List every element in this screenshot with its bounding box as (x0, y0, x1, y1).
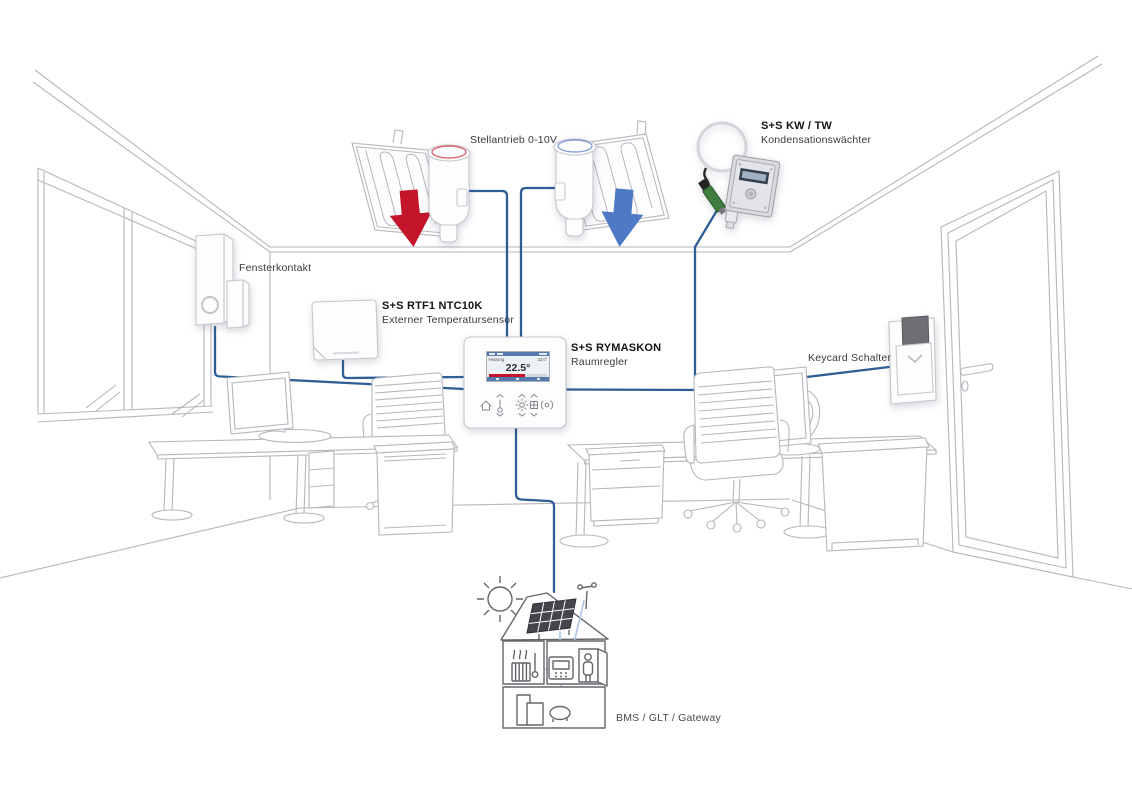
label-room-controller-subtitle: Raumregler (571, 356, 628, 368)
door (941, 171, 1073, 577)
room-outline (0, 56, 1132, 589)
temp-sensor-device (312, 300, 378, 360)
thermostat-icon (549, 657, 573, 679)
chair-right (684, 367, 789, 532)
window-contact-device (196, 234, 249, 328)
display-mode-row: Heizung 22.0° (487, 356, 549, 363)
controller-display: Heizung 22.0° 22.5° (486, 351, 550, 382)
label-condensation-title: S+S KW / TW (761, 120, 832, 132)
label-window-contact: Fensterkontakt (239, 262, 311, 274)
cabinet-left (374, 442, 455, 535)
house-bms-icon (477, 576, 608, 728)
display-setpoint: 22.0° (538, 356, 548, 363)
display-mode: Heizung (489, 356, 505, 363)
controller-brand: S+S REGELTECHNIK (468, 341, 562, 347)
condensation-probe (697, 178, 728, 216)
display-temperature: 22.5° (487, 363, 549, 374)
hvac-room-diagram: Stellantrieb 0-10V S+S KW / TW Kondensat… (0, 0, 1132, 800)
label-keycard: Keycard Schalter (808, 352, 891, 364)
label-bms: BMS / GLT / Gateway (616, 712, 721, 724)
appliance-icon (550, 707, 570, 723)
keycard-switch-device (889, 316, 936, 404)
display-menu-bar (487, 377, 549, 381)
wire-bms (516, 427, 554, 592)
cabinet-right-large (818, 438, 929, 551)
door-handle-icon (960, 364, 993, 391)
label-temp-sensor-title: S+S RTF1 NTC10K (382, 300, 483, 312)
label-actuator: Stellantrieb 0-10V (470, 134, 557, 146)
label-temp-sensor-subtitle: Externer Temperatursensor (382, 314, 514, 326)
monitor-left (227, 372, 331, 443)
wire-actuator-right (521, 188, 554, 338)
diagram-canvas (0, 0, 1132, 800)
cabinet-right-small (586, 445, 665, 526)
anemometer-icon (578, 583, 596, 609)
label-room-controller-title: S+S RYMASKON (571, 342, 661, 354)
wire-condensation (695, 212, 716, 390)
label-condensation-subtitle: Kondensationswächter (761, 134, 871, 146)
window (38, 168, 213, 422)
